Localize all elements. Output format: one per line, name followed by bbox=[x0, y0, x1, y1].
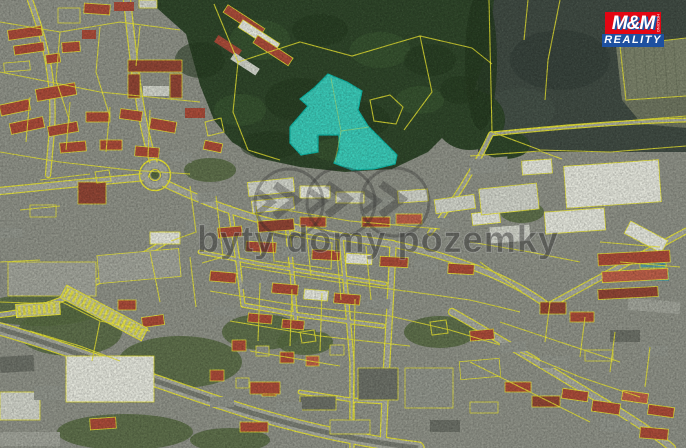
mm-reality-logo: M&M HOLDING REALITY bbox=[602, 12, 664, 47]
logo-subtitle-text: REALITY bbox=[604, 35, 662, 46]
watermark-text: byty domy pozemky bbox=[197, 219, 559, 260]
logo-title-box: M&M HOLDING bbox=[605, 12, 661, 34]
logo-side-text: HOLDING bbox=[656, 14, 660, 32]
logo-title-text: M&M bbox=[612, 14, 654, 33]
logo-subtitle-box: REALITY bbox=[602, 34, 664, 47]
map-screenshot: byty domy pozemky M&M HOLDING REALITY bbox=[0, 0, 686, 448]
satellite-map: byty domy pozemky bbox=[0, 0, 686, 448]
